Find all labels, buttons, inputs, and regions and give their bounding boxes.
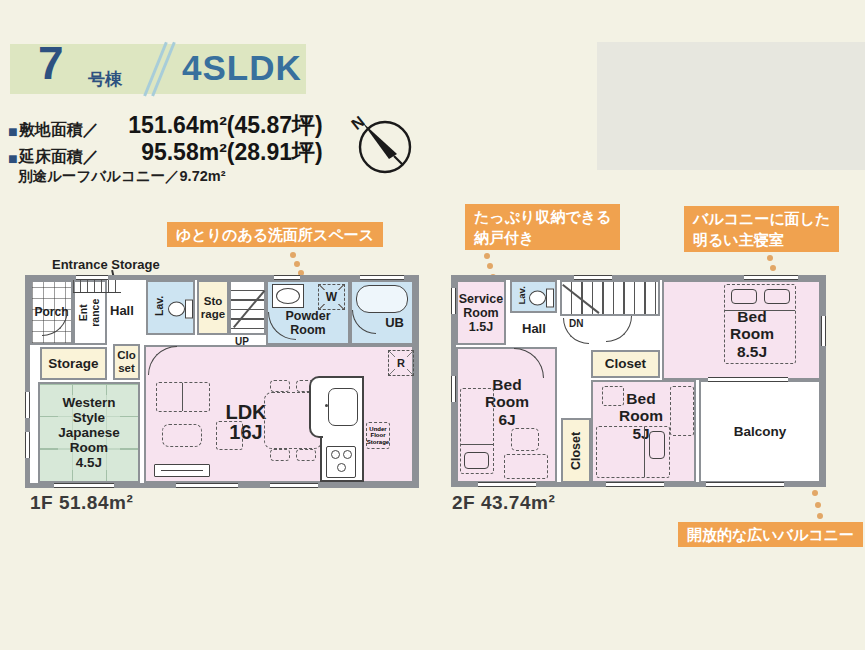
room-closet-mid: Closet	[561, 418, 591, 483]
room-closet-mid-label: Closet	[569, 431, 583, 469]
unit-header-band: 7 号棟 4SLDK	[10, 44, 306, 94]
stairs-diagonal	[233, 290, 265, 328]
room-storage-small: Sto rage	[197, 280, 229, 335]
window	[821, 316, 826, 346]
leader-dot	[294, 261, 300, 267]
floor-area-label: 延床面積／	[19, 147, 115, 168]
entrance-storage-shelf	[73, 280, 121, 293]
kitchen-counter	[320, 376, 364, 482]
bathtub-icon	[356, 285, 408, 313]
window	[478, 482, 536, 487]
window	[274, 275, 300, 280]
room-lavatory-2f-label: Lav.	[517, 286, 528, 304]
fridge-box: R	[388, 350, 414, 376]
armchair-icon	[216, 421, 243, 450]
desk-icon	[504, 454, 548, 479]
pillow-icon	[649, 431, 665, 459]
washer-box: W	[318, 284, 345, 310]
window	[708, 377, 788, 382]
under-floor-storage-label: Under Floor Storage	[367, 426, 389, 446]
pillow-icon	[731, 289, 757, 304]
floor-plan-sheet: 7 号棟 4SLDK ■ 敷地面積／ 151.64m²(45.87坪) ■ 延床…	[0, 0, 865, 650]
toilet-icon	[168, 298, 193, 320]
window	[270, 483, 318, 488]
room-storage: Storage	[40, 347, 107, 380]
compass-icon: N	[350, 110, 416, 176]
unit-number-suffix: 号棟	[88, 68, 122, 91]
room-closet-hall-label: Closet	[605, 356, 646, 371]
leader-dot	[487, 263, 493, 269]
chair-icon	[602, 386, 624, 406]
toilet-icon	[529, 288, 554, 308]
leader-dot	[484, 253, 490, 259]
floor1-caption: 1F 51.84m²	[30, 492, 133, 514]
room-hall-label: Hall	[110, 304, 134, 319]
floor-area-value: 95.58m²(28.91坪)	[115, 137, 323, 168]
burner-icon	[331, 450, 340, 459]
entrance-storage-annotation: Entrance Storage	[52, 257, 160, 272]
room-balcony: Balcony	[699, 380, 821, 483]
callout-balcony: 開放的な広いバルコニー	[678, 522, 863, 547]
blanket-line	[725, 310, 795, 311]
window	[76, 275, 108, 280]
room-lavatory: Lav.	[146, 280, 195, 335]
dining-chair-icon	[270, 380, 290, 392]
blanket-line	[644, 427, 645, 477]
room-storage-label: Storage	[48, 356, 98, 371]
leader-dot	[815, 502, 821, 508]
unit-number: 7	[38, 36, 64, 90]
room-closet-hall: Closet	[591, 350, 660, 378]
leader-dot	[767, 255, 773, 261]
floor2-plan: Service Room 1.5J Lav. Hall DN Bed Room …	[451, 275, 826, 487]
square-bullet-icon: ■	[8, 150, 19, 168]
leader-dot	[290, 252, 296, 258]
under-floor-storage-box: Under Floor Storage	[366, 422, 390, 449]
window	[25, 432, 30, 458]
window	[744, 275, 798, 280]
room-lavatory-label: Lav.	[154, 296, 166, 316]
window	[574, 275, 612, 280]
window	[25, 392, 30, 418]
room-lavatory-2f: Lav.	[510, 280, 557, 313]
sink-icon	[272, 284, 304, 308]
room-entrance-label: Ent rance	[78, 298, 102, 326]
window	[706, 482, 784, 487]
stove-icon	[326, 446, 356, 478]
kitchen-counter-cap	[309, 376, 323, 438]
pillow-icon	[464, 452, 489, 469]
room-japanese: Western Style Japanese Room 4.5J	[38, 382, 140, 483]
blanket-line	[461, 444, 493, 445]
room-hall-2f-label: Hall	[522, 322, 546, 337]
callout-master-bedroom: バルコニーに面した 明るい主寝室	[684, 206, 839, 252]
leader-dot	[812, 490, 818, 496]
burner-icon	[337, 463, 346, 472]
room-ub-label: UB	[385, 316, 404, 331]
window	[360, 275, 404, 280]
room-japanese-label: Western Style Japanese Room 4.5J	[58, 395, 120, 471]
plan-type: 4SLDK	[182, 48, 302, 88]
room-closet: Clo set	[113, 344, 140, 380]
window	[451, 288, 456, 314]
kitchen-sink-icon	[328, 388, 358, 426]
room-service-label: Service Room 1.5J	[459, 292, 503, 334]
washer-label: W	[324, 290, 339, 304]
room-balcony-label: Balcony	[734, 424, 787, 439]
window	[606, 482, 664, 487]
floor-area-line: ■ 延床面積／ 95.58m²(28.91坪)	[8, 137, 323, 168]
leader-dot	[817, 513, 823, 519]
faucet-dot	[325, 404, 328, 407]
window	[54, 483, 114, 488]
dining-chair-icon	[270, 449, 290, 461]
leader-dot	[770, 265, 776, 271]
stairs-diagonal	[562, 284, 599, 314]
photo-placeholder-block	[597, 42, 865, 170]
chair-icon	[511, 428, 539, 451]
callout-washroom: ゆとりのある洗面所スペース	[167, 222, 383, 247]
tv-board-icon	[154, 464, 210, 477]
floor2-caption: 2F 43.74m²	[452, 492, 555, 514]
window	[176, 483, 238, 488]
stairs-up	[229, 280, 266, 335]
door-arc	[563, 318, 589, 344]
dining-chair-icon	[296, 449, 316, 461]
floor1-plan: Porch Ent rance Hall Lav. Sto rage UP Po…	[25, 275, 419, 488]
callout-storeroom: たっぷり収納できる 納戸付き	[465, 204, 620, 250]
door-arc	[606, 316, 632, 342]
fridge-label: R	[395, 357, 407, 369]
roof-balcony-note: 別途ルーフバルコニー／9.72m²	[18, 167, 225, 186]
room-closet-label: Clo set	[117, 349, 136, 375]
stairs-down	[560, 280, 660, 316]
room-storage-small-label: Sto rage	[201, 295, 225, 321]
burner-icon	[343, 450, 352, 459]
desk-icon	[670, 386, 694, 436]
sofa-divider	[182, 383, 183, 411]
coffee-table-icon	[162, 424, 202, 447]
pillow-icon	[764, 289, 790, 304]
window	[451, 376, 456, 402]
room-service: Service Room 1.5J	[456, 280, 506, 345]
